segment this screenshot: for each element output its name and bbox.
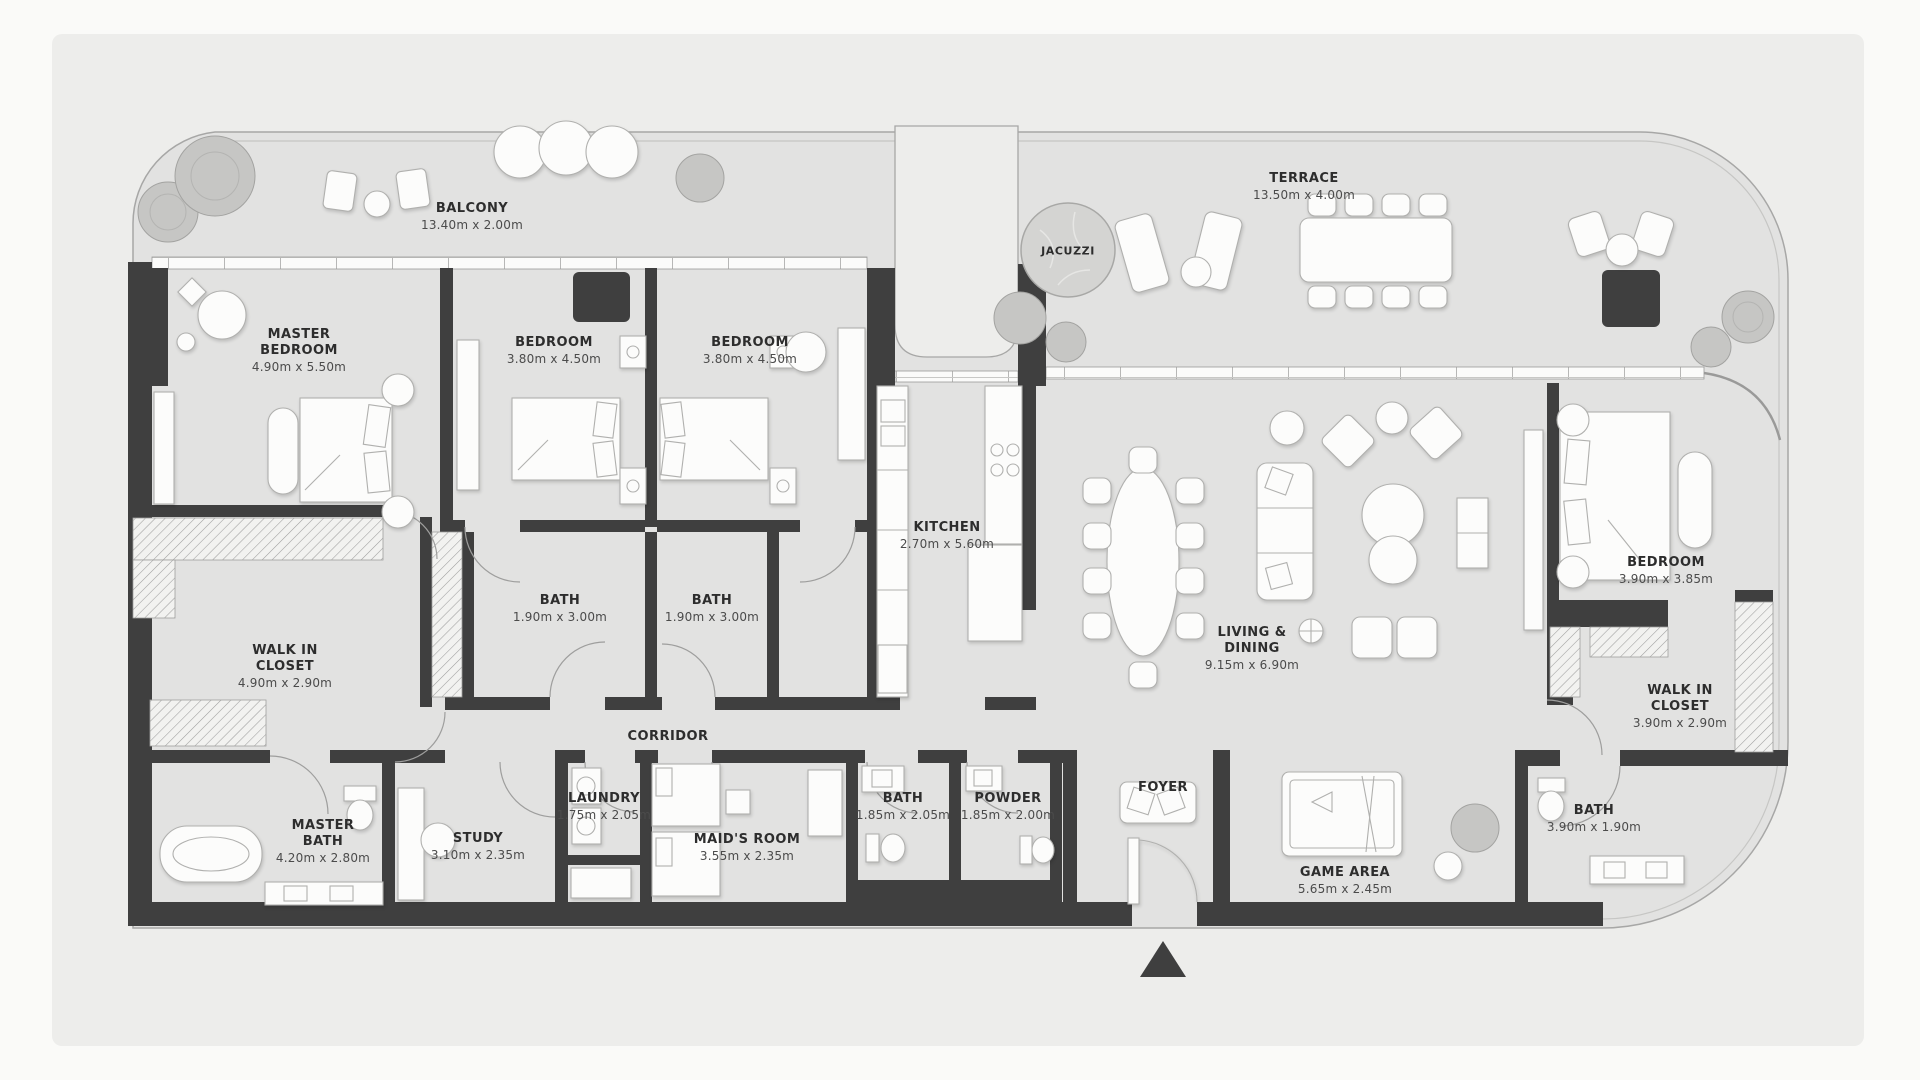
- billiard-table: [1282, 772, 1402, 856]
- closet-left-wardrobe-bottom: [150, 700, 266, 746]
- tv-console: [1524, 430, 1543, 630]
- terrace-window: [1046, 367, 1704, 379]
- wall-foyer-left: [1063, 750, 1077, 908]
- wall-b2-b3: [645, 268, 657, 527]
- closet-right-wardrobe-a: [1590, 627, 1668, 657]
- balcony-window: [152, 257, 867, 269]
- entrance-arrow-icon: [1140, 941, 1186, 977]
- wall-bottom-left: [128, 902, 1132, 926]
- wall-kitchen-right: [1022, 385, 1036, 610]
- wall-game-left: [1213, 750, 1230, 908]
- wall-bottom-right: [1197, 902, 1603, 926]
- terrace-table: [1300, 218, 1452, 282]
- dining-table: [1107, 468, 1179, 656]
- column-block-balcony: [573, 272, 630, 322]
- plant-icon: [1451, 804, 1499, 852]
- jacuzzi-circle: [1021, 203, 1115, 297]
- floor-plan-page: { "plan": { "type": "apartment-floor-pla…: [0, 0, 1920, 1080]
- wall-closet-right: [420, 517, 432, 707]
- tree-icon: [676, 154, 724, 202]
- column-block-terrace: [1602, 270, 1660, 327]
- floor-plan-drawing: [0, 0, 1920, 1080]
- tree-icon: [1691, 327, 1731, 367]
- wall-notch-left: [867, 268, 895, 386]
- foyer-furniture: [1120, 782, 1196, 823]
- desk: [398, 788, 424, 900]
- toilet: [347, 800, 373, 830]
- wall-mb-closet: [128, 505, 385, 517]
- tree-icon: [175, 136, 255, 216]
- tree-icon: [1722, 291, 1774, 343]
- bench: [268, 408, 298, 494]
- tree-icon: [1046, 322, 1086, 362]
- tree-icon: [994, 292, 1046, 344]
- wall-left-slab: [152, 268, 168, 386]
- closet-left-wardrobe-top: [133, 518, 383, 560]
- closet-right-wardrobe-b: [1735, 602, 1773, 752]
- bed-4: [1560, 412, 1670, 580]
- kitchen-window: [895, 371, 1018, 382]
- wall-mb-b2: [440, 268, 453, 527]
- wall-b3-kitchen: [867, 386, 877, 697]
